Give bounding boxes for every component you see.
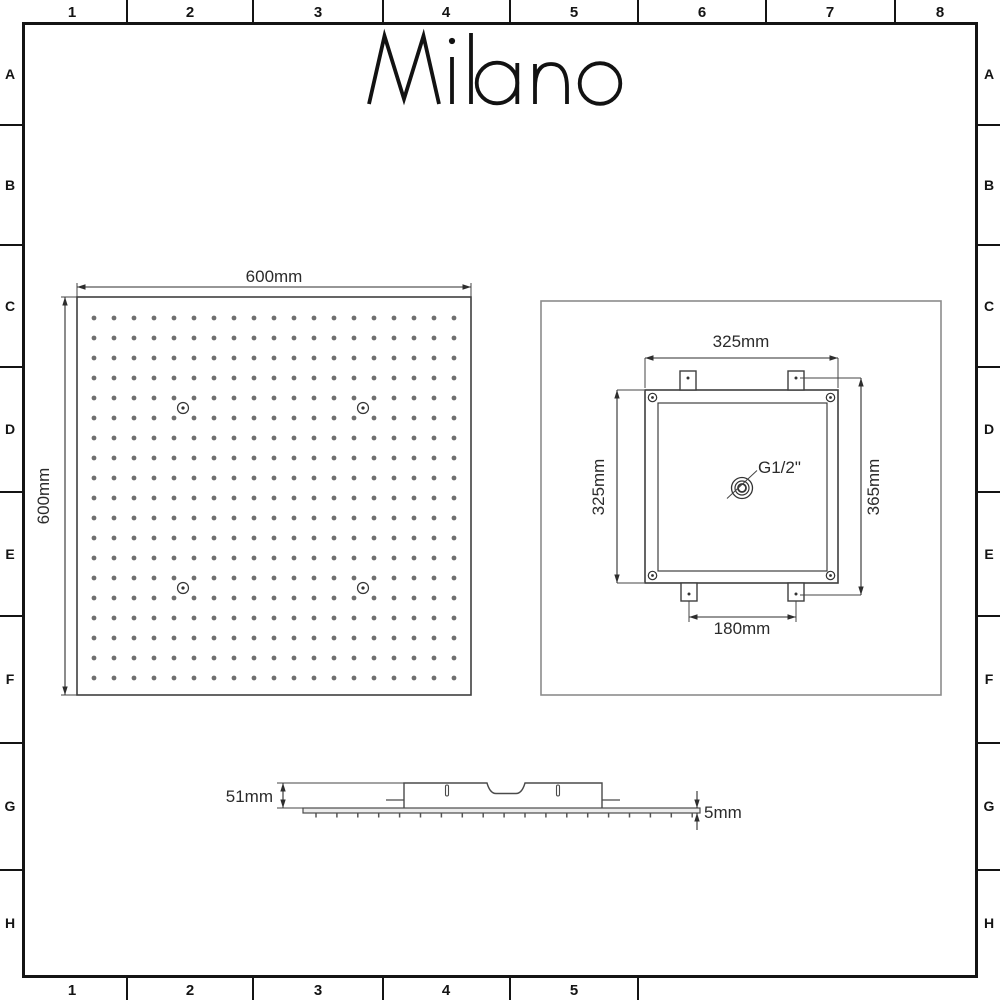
nozzle-dot (212, 656, 217, 661)
nozzle-dot (212, 516, 217, 521)
nozzle-dot (372, 416, 377, 421)
nozzle-dot (312, 636, 317, 641)
nozzle-dot (372, 456, 377, 461)
nozzle-dot (312, 556, 317, 561)
nozzle-dot (192, 456, 197, 461)
nozzle-dot (452, 576, 457, 581)
nozzle-dot (272, 336, 277, 341)
nozzle-dot (132, 476, 137, 481)
nozzle-dot (332, 576, 337, 581)
nozzle-dot (372, 576, 377, 581)
nozzle-dot (392, 596, 397, 601)
nozzle-dot (292, 436, 297, 441)
nozzle-dot (272, 656, 277, 661)
nozzle-dot (212, 536, 217, 541)
nozzle-dot (292, 656, 297, 661)
grid-ref-right: A (984, 66, 994, 82)
nozzle-dot (332, 656, 337, 661)
nozzle-dot (352, 416, 357, 421)
nozzle-dot (392, 396, 397, 401)
nozzle-dot (412, 376, 417, 381)
profile-depth-dimension-label: 51mm (226, 787, 273, 806)
nozzle-dot (312, 656, 317, 661)
nozzle-dot (252, 676, 257, 681)
nozzle-dot (252, 576, 257, 581)
nozzle-dot (432, 596, 437, 601)
nozzle-dot (332, 456, 337, 461)
nozzle-dot (312, 336, 317, 341)
nozzle-dot (132, 576, 137, 581)
nozzle-dot (132, 416, 137, 421)
nozzle-dot (192, 356, 197, 361)
nozzle-dot (272, 436, 277, 441)
mount-marker-dot (181, 586, 184, 589)
grid-ref-top: 2 (186, 4, 194, 21)
nozzle-dot (172, 676, 177, 681)
nozzle-dot (112, 416, 117, 421)
dimension-arrowhead (694, 813, 699, 822)
nozzle-dot (192, 536, 197, 541)
dimension-arrowhead (62, 687, 67, 696)
nozzle-dot (112, 616, 117, 621)
nozzle-dot (452, 396, 457, 401)
nozzle-dot (352, 516, 357, 521)
grid-ref-top: 3 (314, 4, 322, 21)
nozzle-dot (412, 676, 417, 681)
nozzle-dot (252, 456, 257, 461)
nozzle-dot (392, 616, 397, 621)
nozzle-dot (272, 316, 277, 321)
nozzle-dot (252, 416, 257, 421)
nozzle-dot (412, 516, 417, 521)
nozzle-dot (112, 496, 117, 501)
nozzle-dot (332, 376, 337, 381)
nozzle-dot (212, 456, 217, 461)
nozzle-dot (432, 356, 437, 361)
grid-ref-right: F (985, 671, 994, 687)
nozzle-dot (312, 576, 317, 581)
nozzle-dot (112, 316, 117, 321)
nozzle-dot (352, 576, 357, 581)
nozzle-dot (312, 456, 317, 461)
bracket-tab (681, 583, 697, 601)
nozzle-dot (132, 676, 137, 681)
rear-view: G1/2" 325mm 325mm 365mm 180mm (541, 301, 941, 695)
nozzle-dot (232, 596, 237, 601)
nozzle-dot (312, 596, 317, 601)
nozzle-dot (292, 616, 297, 621)
nozzle-dot (252, 336, 257, 341)
nozzle-dot (232, 376, 237, 381)
dimension-arrowhead (694, 800, 699, 809)
nozzle-dot (192, 636, 197, 641)
nozzle-dot (252, 356, 257, 361)
nozzle-dot (392, 356, 397, 361)
nozzle-dot (372, 516, 377, 521)
nozzle-dot (192, 516, 197, 521)
nozzle-dot (392, 316, 397, 321)
nozzle-dot (232, 516, 237, 521)
nozzle-dot (212, 316, 217, 321)
mount-marker-dot (361, 406, 364, 409)
nozzle-dot (152, 596, 157, 601)
front-width-dimension-label: 600mm (246, 267, 303, 286)
nozzle-dot (372, 556, 377, 561)
nozzle-dot (332, 476, 337, 481)
nozzle-dot (452, 556, 457, 561)
nozzle-dot (192, 556, 197, 561)
nozzle-dot (132, 436, 137, 441)
nozzle-dot (92, 596, 97, 601)
nozzle-dot (212, 636, 217, 641)
grid-ref-right: C (984, 298, 994, 314)
nozzle-dot (332, 436, 337, 441)
nozzle-dot (252, 396, 257, 401)
nozzle-dot (92, 676, 97, 681)
nozzle-dot (172, 656, 177, 661)
mount-marker-dot (181, 406, 184, 409)
nozzle-dot (152, 376, 157, 381)
nozzle-dot (112, 396, 117, 401)
nozzle-dot (192, 496, 197, 501)
grid-ref-bottom: 5 (570, 982, 578, 999)
nozzle-dot (212, 576, 217, 581)
nozzle-dot (432, 656, 437, 661)
housing-slot-right (557, 785, 560, 796)
nozzle-dot (112, 376, 117, 381)
nozzle-dot (232, 656, 237, 661)
bracket-tab-hole (795, 377, 798, 380)
nozzle-dot (132, 536, 137, 541)
nozzle-dot (152, 456, 157, 461)
nozzle-dot (312, 356, 317, 361)
nozzle-dot (292, 336, 297, 341)
nozzle-dot (132, 336, 137, 341)
nozzle-dot (232, 436, 237, 441)
nozzle-dot (232, 616, 237, 621)
nozzle-dot (192, 596, 197, 601)
nozzle-dot (412, 596, 417, 601)
nozzle-dot (452, 616, 457, 621)
nozzle-dot (392, 436, 397, 441)
nozzle-dot (392, 516, 397, 521)
nozzle-dot (92, 536, 97, 541)
bracket-tab-hole (795, 593, 798, 596)
drawing-sheet: 1234567812345ABCDEFGHABCDEFGH Milano 600… (0, 0, 1000, 1000)
nozzle-dot (432, 456, 437, 461)
nozzle-dot (152, 396, 157, 401)
grid-ref-left: G (5, 798, 16, 814)
nozzle-dot (112, 576, 117, 581)
nozzle-dot (392, 536, 397, 541)
nozzle-dot (372, 536, 377, 541)
nozzle-dot (232, 676, 237, 681)
nozzle-dot (352, 456, 357, 461)
grid-ref-right: H (984, 915, 994, 931)
nozzle-dot (372, 316, 377, 321)
nozzle-dot (352, 616, 357, 621)
nozzle-dot (332, 596, 337, 601)
nozzle-dot (412, 656, 417, 661)
grid-ref-right: G (984, 798, 995, 814)
nozzle-dot (412, 336, 417, 341)
nozzle-dot (412, 476, 417, 481)
nozzle-dot (212, 336, 217, 341)
nozzle-dot (232, 456, 237, 461)
nozzle-dot (412, 576, 417, 581)
nozzle-dot (352, 636, 357, 641)
nozzle-dot (272, 596, 277, 601)
nozzle-dot (412, 616, 417, 621)
nozzle-dot (412, 436, 417, 441)
nozzle-dot (292, 396, 297, 401)
nozzle-dot (252, 616, 257, 621)
nozzle-dot (192, 616, 197, 621)
grid-ref-bottom: 4 (442, 982, 451, 999)
nozzle-dot (92, 396, 97, 401)
nozzle-dot (172, 576, 177, 581)
nozzle-dot (92, 656, 97, 661)
nozzle-dot (412, 316, 417, 321)
grid-ref-bottom: 2 (186, 982, 194, 999)
nozzle-dot (352, 496, 357, 501)
nozzle-dot (232, 556, 237, 561)
nozzle-dot (372, 356, 377, 361)
nozzle-dot (292, 356, 297, 361)
nozzle-dot (132, 516, 137, 521)
nozzle-dot (192, 336, 197, 341)
rear-overall-height-dimension-label: 365mm (864, 459, 883, 516)
grid-ref-left: B (5, 177, 15, 193)
nozzle-dot (92, 516, 97, 521)
plate-thickness-dimension-label: 5mm (704, 803, 742, 822)
nozzle-dot (252, 656, 257, 661)
spray-plate-profile (303, 808, 700, 813)
nozzle-dot (392, 456, 397, 461)
nozzle-dot (192, 576, 197, 581)
nozzle-dot (432, 516, 437, 521)
nozzle-dot (312, 516, 317, 521)
nozzle-dot (232, 416, 237, 421)
nozzle-dot (212, 396, 217, 401)
mount-marker-dot (361, 586, 364, 589)
nozzle-dot (152, 416, 157, 421)
nozzle-dot (332, 396, 337, 401)
nozzle-dot (452, 636, 457, 641)
grid-ref-right: E (984, 546, 993, 562)
nozzle-dot (352, 656, 357, 661)
bracket-tab (788, 371, 804, 390)
nozzle-dot (132, 316, 137, 321)
nozzle-dot (312, 396, 317, 401)
nozzle-dot (172, 316, 177, 321)
nozzle-dot (372, 476, 377, 481)
nozzle-dot (272, 356, 277, 361)
nozzle-dot (412, 536, 417, 541)
nozzle-dot (292, 536, 297, 541)
nozzle-dot (132, 356, 137, 361)
nozzle-dot (452, 436, 457, 441)
nozzle-dot (372, 396, 377, 401)
profile-housing (404, 783, 602, 808)
grid-ref-left: E (5, 546, 14, 562)
nozzle-dot (352, 356, 357, 361)
nozzle-dot (352, 476, 357, 481)
nozzle-dot (132, 596, 137, 601)
nozzle-dot (372, 616, 377, 621)
nozzle-dot (152, 636, 157, 641)
nozzle-dot (112, 636, 117, 641)
nozzle-dot (132, 636, 137, 641)
nozzle-dot (112, 656, 117, 661)
nozzle-dot (332, 676, 337, 681)
dimension-arrowhead (280, 783, 285, 792)
nozzle-dot (332, 556, 337, 561)
nozzle-dot (252, 436, 257, 441)
nozzle-dot (452, 336, 457, 341)
nozzle-dot (452, 656, 457, 661)
nozzle-dot (272, 456, 277, 461)
nozzle-dot (292, 636, 297, 641)
dimension-arrowhead (77, 284, 86, 289)
nozzle-dot (332, 416, 337, 421)
nozzle-dot (392, 336, 397, 341)
nozzle-dot (192, 376, 197, 381)
nozzle-dot (152, 656, 157, 661)
inlet-connection-label: G1/2" (758, 458, 801, 477)
nozzle-dot (452, 316, 457, 321)
profile-nozzle-ticks (316, 814, 692, 818)
nozzle-dot (212, 356, 217, 361)
nozzle-dot (252, 636, 257, 641)
nozzle-dot (232, 336, 237, 341)
nozzle-dot (272, 556, 277, 561)
nozzle-dot (192, 436, 197, 441)
nozzle-dot (452, 596, 457, 601)
nozzle-dot (292, 516, 297, 521)
bracket-tab-hole (687, 377, 690, 380)
nozzle-dot (252, 596, 257, 601)
nozzle-dot (272, 676, 277, 681)
grid-ref-bottom: 3 (314, 982, 322, 999)
nozzle-dot (172, 376, 177, 381)
nozzle-dot (372, 596, 377, 601)
nozzle-dot (172, 596, 177, 601)
nozzle-dot (192, 396, 197, 401)
nozzle-dot (172, 636, 177, 641)
nozzle-dot (452, 456, 457, 461)
nozzle-dot (272, 536, 277, 541)
nozzle-dot (172, 476, 177, 481)
nozzle-dot (312, 616, 317, 621)
nozzle-dot (332, 536, 337, 541)
nozzle-dot (212, 416, 217, 421)
nozzle-dot (172, 456, 177, 461)
nozzle-dot (432, 676, 437, 681)
nozzle-dot (172, 396, 177, 401)
nozzle-dot (312, 536, 317, 541)
nozzle-dot (292, 476, 297, 481)
nozzle-dot (312, 316, 317, 321)
grid-ref-top: 7 (826, 4, 834, 21)
nozzle-dot (252, 516, 257, 521)
grid-ref-left: A (5, 66, 15, 82)
nozzle-dot (292, 596, 297, 601)
nozzle-dot (452, 676, 457, 681)
corner-screw-center (829, 396, 832, 399)
nozzle-dot (432, 556, 437, 561)
nozzle-dot (272, 416, 277, 421)
dimension-arrowhead (280, 800, 285, 809)
nozzle-dot (112, 596, 117, 601)
nozzle-dot (372, 496, 377, 501)
nozzle-dot (292, 496, 297, 501)
nozzle-dot (332, 356, 337, 361)
nozzle-dot (392, 376, 397, 381)
bracket-spacing-dimension-label: 180mm (714, 619, 771, 638)
nozzle-dot (252, 496, 257, 501)
grid-ref-left: D (5, 421, 15, 437)
nozzle-dot (352, 316, 357, 321)
nozzle-dot (192, 476, 197, 481)
nozzle-dot (372, 656, 377, 661)
nozzle-dot (152, 496, 157, 501)
bracket-tab-hole (688, 593, 691, 596)
nozzle-dot (212, 616, 217, 621)
front-view: 600mm 600mm (34, 267, 471, 695)
nozzle-dot (252, 316, 257, 321)
nozzle-dot (332, 516, 337, 521)
nozzle-dot (192, 416, 197, 421)
nozzle-dot (432, 476, 437, 481)
nozzle-dot (392, 496, 397, 501)
nozzle-dot (132, 376, 137, 381)
nozzle-dot (212, 496, 217, 501)
nozzle-dot (272, 516, 277, 521)
nozzle-dot (172, 416, 177, 421)
grid-ref-top: 4 (442, 4, 451, 21)
nozzle-dot (252, 536, 257, 541)
nozzle-dot (352, 396, 357, 401)
nozzle-dot (192, 316, 197, 321)
nozzle-dot (412, 456, 417, 461)
nozzle-dot (292, 556, 297, 561)
nozzle-dot (312, 676, 317, 681)
nozzle-dot (232, 476, 237, 481)
nozzle-dot (152, 536, 157, 541)
dimension-arrowhead (463, 284, 472, 289)
nozzle-dot (232, 636, 237, 641)
nozzle-dot (92, 356, 97, 361)
rear-width-dimension-label: 325mm (713, 332, 770, 351)
grid-ref-top: 1 (68, 4, 76, 21)
nozzle-dot (212, 596, 217, 601)
nozzle-dot (352, 336, 357, 341)
nozzle-dot (392, 676, 397, 681)
nozzle-dot (432, 636, 437, 641)
nozzle-dot (452, 376, 457, 381)
nozzle-dot (92, 416, 97, 421)
nozzle-dot (132, 496, 137, 501)
rear-height-dimension-label: 325mm (589, 459, 608, 516)
nozzle-dot (432, 396, 437, 401)
nozzle-dot (372, 636, 377, 641)
nozzle-dot (312, 436, 317, 441)
grid-ref-top: 6 (698, 4, 706, 21)
nozzle-dot (332, 616, 337, 621)
nozzle-dot (172, 336, 177, 341)
nozzle-dot (232, 576, 237, 581)
